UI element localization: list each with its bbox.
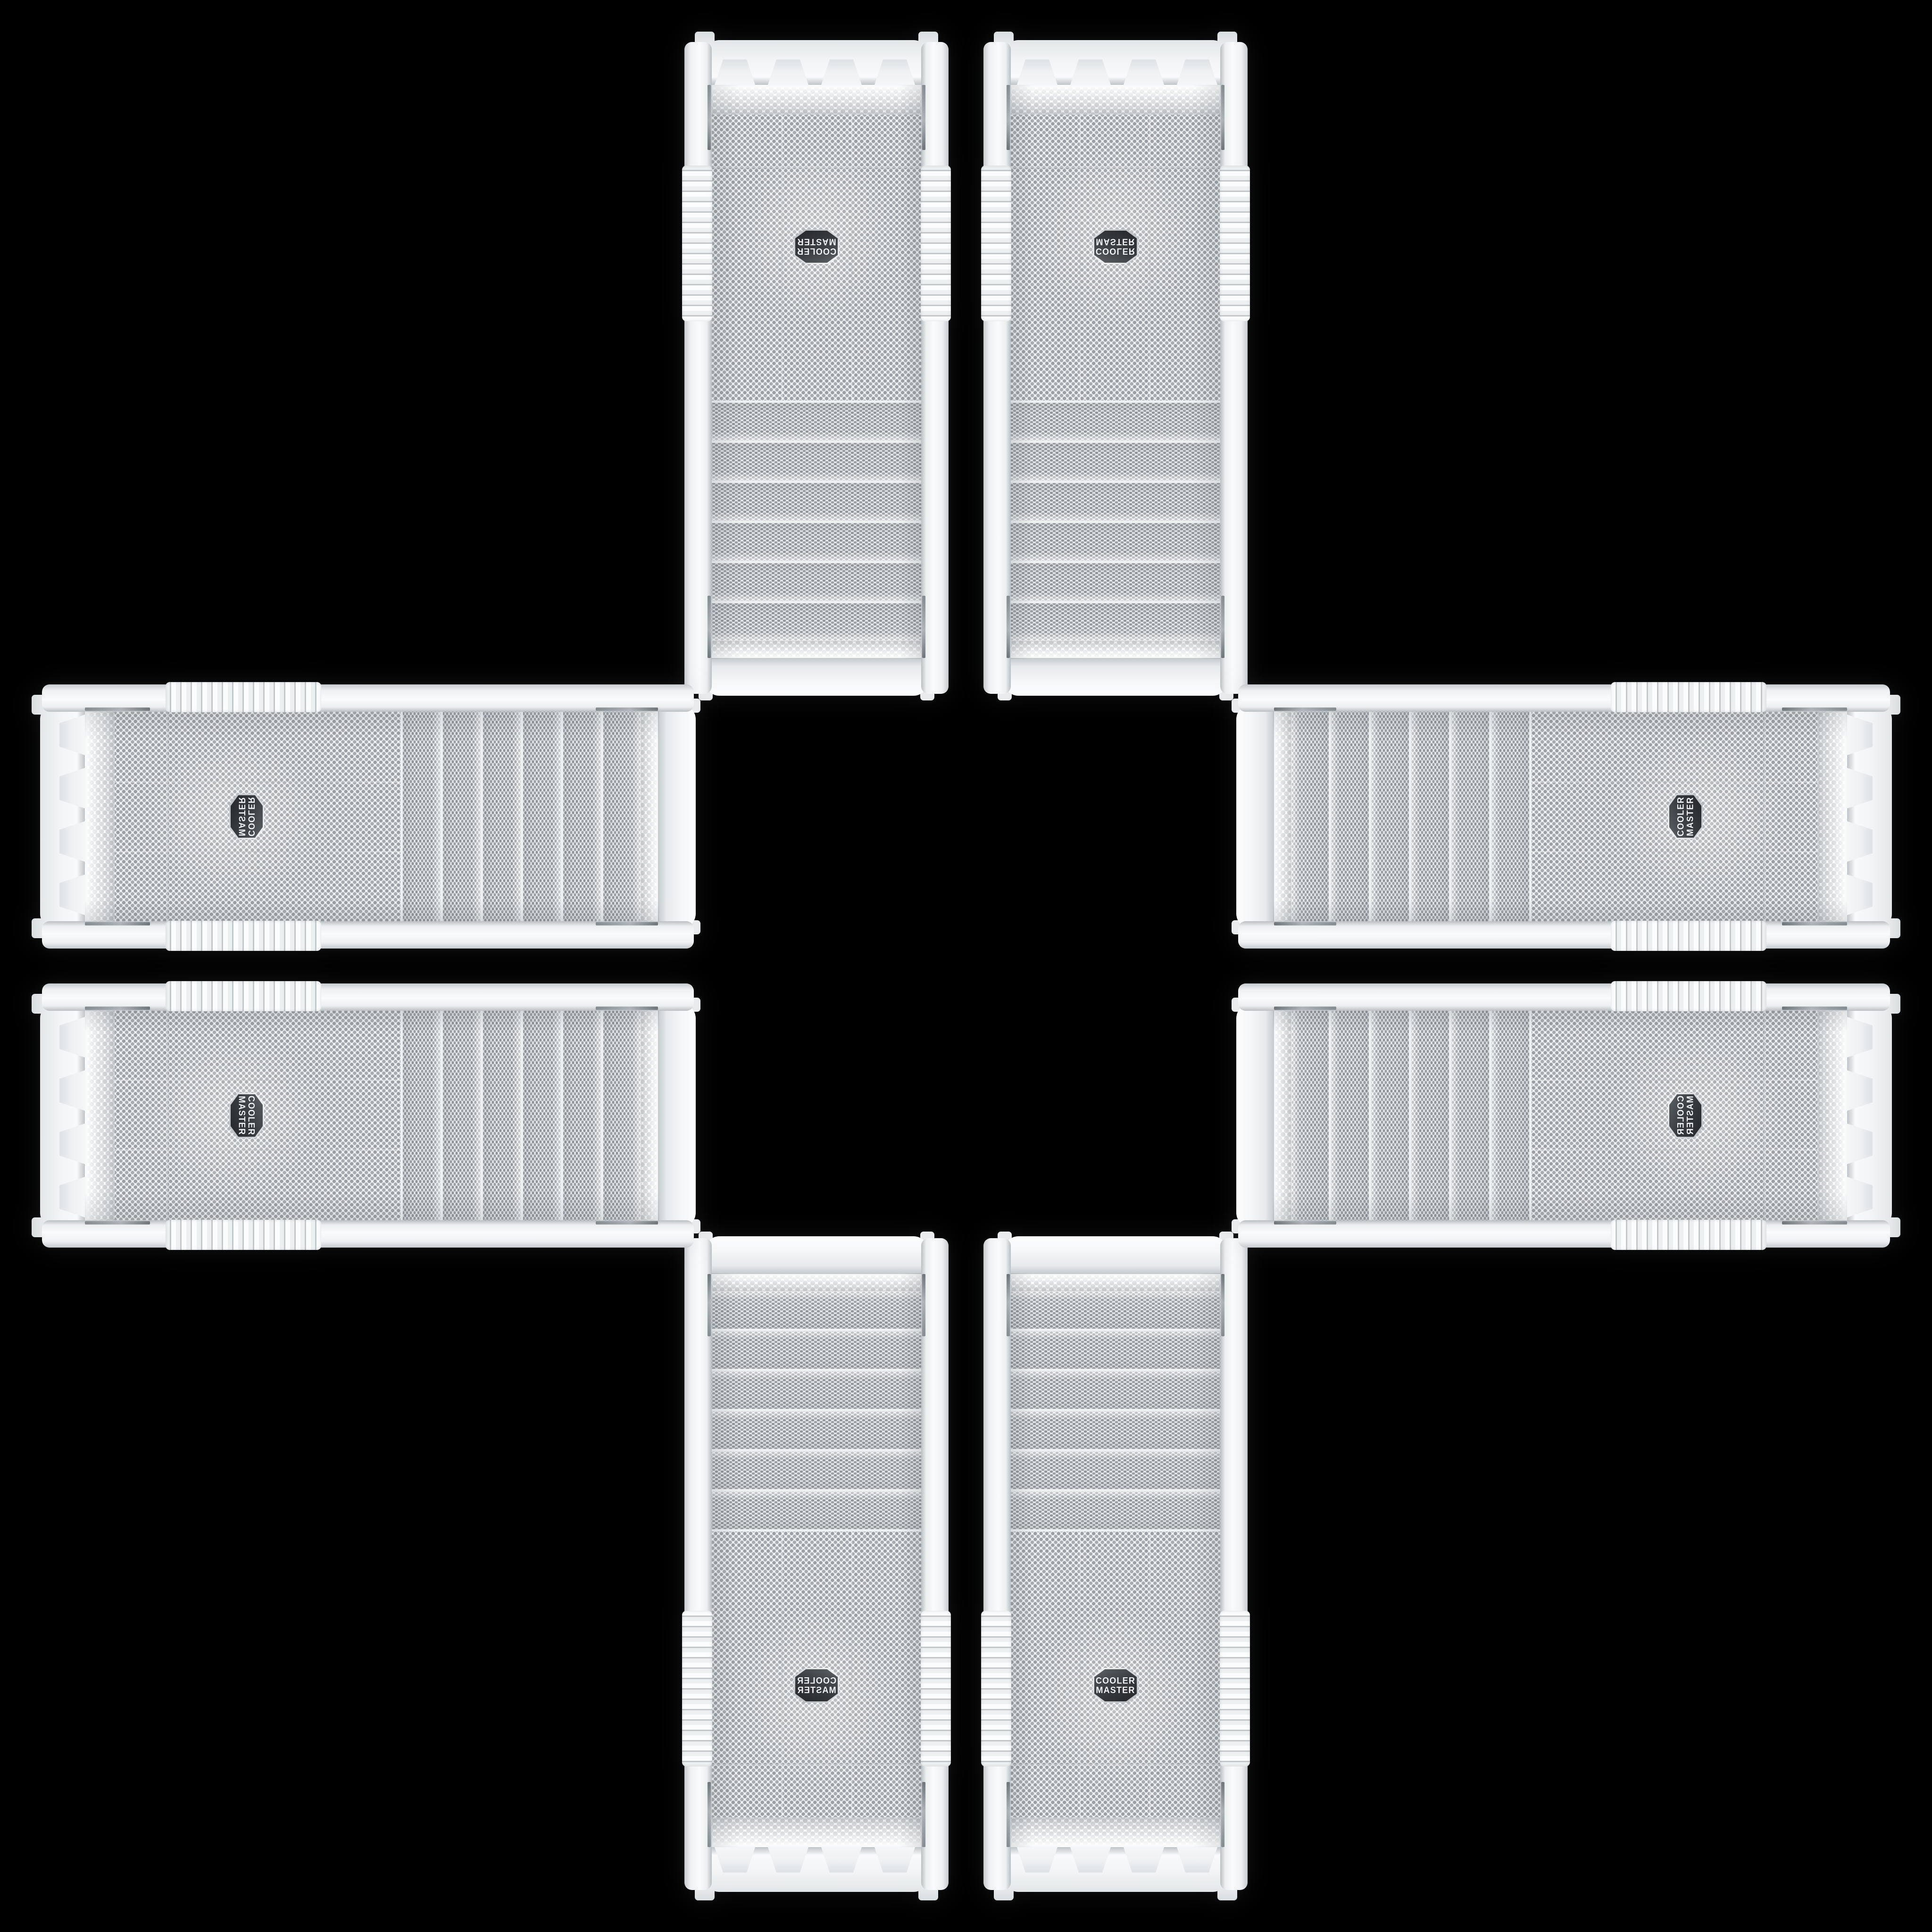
drive-bay-strips <box>711 1291 922 1532</box>
foot-bump <box>1846 817 1873 866</box>
foot-bump <box>59 764 86 813</box>
cooler-master-badge: COOLER MASTER <box>1668 794 1703 839</box>
chrome-trim <box>1007 85 1010 150</box>
chrome-trim <box>1221 596 1224 658</box>
top-curved-mesh-band <box>1273 711 1291 922</box>
badge-text-line2: MASTER <box>1685 797 1695 836</box>
rail-grip-ribs <box>1611 921 1766 951</box>
rail-grip-ribs <box>1611 1220 1766 1250</box>
chrome-trim <box>708 596 711 658</box>
top-curved-mesh-band <box>1273 1010 1291 1221</box>
foot-bump <box>59 870 86 919</box>
chrome-trim <box>1221 85 1224 150</box>
drive-bay-cover <box>1010 403 1221 441</box>
foot-bump <box>817 1846 866 1873</box>
foot-bump <box>1846 764 1873 813</box>
drive-bay-cover <box>1451 1010 1489 1221</box>
cooler-master-badge: COOLER MASTER <box>229 1093 264 1138</box>
mesh-seam <box>115 1149 400 1150</box>
top-curved-mesh-band <box>711 641 922 659</box>
foot-bump <box>1119 1846 1168 1873</box>
chrome-trim <box>708 1274 711 1336</box>
drive-bay-cover <box>1010 483 1221 521</box>
cooler-master-badge: COOLER MASTER <box>229 794 264 839</box>
top-cap <box>658 705 696 928</box>
drive-bay-cover <box>1371 711 1409 922</box>
drive-bay-strips <box>1010 1291 1221 1532</box>
chrome-trim <box>1007 1274 1010 1336</box>
chrome-trim <box>922 85 925 150</box>
badge-text-line1: COOLER <box>246 797 257 836</box>
tower-bottom-left: COOLER MASTER <box>684 1236 949 1892</box>
rail-grip-ribs <box>981 1611 1011 1766</box>
mesh-seam <box>167 711 168 922</box>
drive-bay-cover <box>1010 1331 1221 1369</box>
chrome-trim <box>1274 708 1336 711</box>
drive-bay-cover <box>483 711 521 922</box>
drive-bay-cover <box>1411 711 1449 922</box>
badge-text-line1: COOLER <box>797 1675 836 1686</box>
mesh-seam <box>1532 1149 1817 1150</box>
drive-bay-cover <box>1411 1010 1449 1221</box>
badge-face: COOLER MASTER <box>795 231 838 263</box>
front-mesh-bezel <box>1009 1273 1222 1847</box>
cooler-master-badge: COOLER MASTER <box>794 1668 839 1703</box>
drive-bay-cover <box>1010 563 1221 601</box>
chrome-trim <box>1274 922 1336 925</box>
rail-grip-ribs <box>921 1611 951 1766</box>
top-cap <box>705 658 928 696</box>
foot-bump <box>1119 59 1168 86</box>
chrome-trim <box>85 1221 150 1224</box>
chrome-trim <box>1274 1007 1336 1010</box>
foot-bump <box>1846 870 1873 919</box>
cooler-master-badge: COOLER MASTER <box>1668 1093 1703 1138</box>
rail-grip-ribs <box>682 1611 712 1766</box>
top-curved-mesh-band <box>641 1010 659 1221</box>
drive-bay-cover <box>711 403 922 441</box>
mesh-seam <box>167 1010 168 1221</box>
drive-bay-cover <box>603 711 641 922</box>
badge-face: COOLER MASTER <box>795 1669 838 1701</box>
chrome-trim <box>1274 1221 1336 1224</box>
front-mesh-bezel <box>1273 710 1847 923</box>
rail-grip-ribs <box>166 682 321 712</box>
foot-bump <box>870 1846 919 1873</box>
foot-bump <box>764 59 813 86</box>
drive-bay-cover <box>1371 1010 1409 1221</box>
drive-bay-cover <box>443 1010 481 1221</box>
foot-bump <box>1066 59 1115 86</box>
chrome-trim <box>922 596 925 658</box>
chrome-trim <box>708 1782 711 1847</box>
bottom-curved-mesh-band <box>1817 711 1847 922</box>
foot-bump <box>710 1846 759 1873</box>
badge-face: COOLER MASTER <box>1094 1669 1137 1701</box>
foot-bump <box>1846 1119 1873 1168</box>
rail-grip-ribs <box>1611 981 1766 1011</box>
rail-grip-ribs <box>166 1220 321 1250</box>
bottom-curved-mesh-band <box>1010 1817 1221 1847</box>
drive-bay-cover <box>711 1411 922 1449</box>
bottom-cap <box>1004 40 1227 85</box>
drive-bay-cover <box>523 1010 561 1221</box>
drive-bay-cover <box>523 711 561 922</box>
chrome-trim <box>85 1007 150 1010</box>
bottom-curved-mesh-band <box>1817 1010 1847 1221</box>
badge-face: COOLER MASTER <box>1669 1094 1701 1137</box>
horizontal-left-top: COOLER MASTER <box>40 684 696 949</box>
drive-bay-strips <box>400 711 641 922</box>
mesh-seam <box>1010 1764 1221 1765</box>
badge-text-line1: COOLER <box>797 246 836 257</box>
drive-bay-cover <box>563 711 601 922</box>
foot-bump <box>59 1173 86 1222</box>
foot-bump <box>1846 1066 1873 1115</box>
tower-top-left: COOLER MASTER <box>684 40 949 696</box>
drive-bay-cover <box>603 1010 641 1221</box>
drive-bay-cover <box>1451 711 1489 922</box>
drive-bay-cover <box>443 711 481 922</box>
foot-bump <box>59 1119 86 1168</box>
foot-bump <box>1013 59 1062 86</box>
chrome-trim <box>85 708 150 711</box>
horizontal-right-top: COOLER MASTER <box>1236 684 1892 949</box>
badge-face: COOLER MASTER <box>231 1094 263 1137</box>
tower-top-right: COOLER MASTER <box>983 40 1248 696</box>
foot-bump <box>1013 1846 1062 1873</box>
foot-bump <box>59 710 86 759</box>
cooler-master-badge: COOLER MASTER <box>1093 229 1138 264</box>
bottom-curved-mesh-band <box>711 85 922 115</box>
rail-grip-ribs <box>166 921 321 951</box>
drive-bay-cover <box>711 523 922 561</box>
chrome-trim <box>708 85 711 150</box>
foot-bump <box>1173 1846 1222 1873</box>
bottom-cap <box>40 1004 85 1227</box>
mesh-seam <box>115 1080 400 1081</box>
cooler-master-badge: COOLER MASTER <box>794 229 839 264</box>
badge-text-line1: COOLER <box>246 1096 257 1135</box>
chrome-trim <box>596 708 658 711</box>
badge-text-line2: MASTER <box>237 1096 247 1135</box>
rail-grip-ribs <box>921 166 951 321</box>
mesh-seam <box>1149 115 1150 400</box>
horizontal-right-bottom: COOLER MASTER <box>1236 983 1892 1248</box>
top-cap <box>1004 1236 1227 1274</box>
mesh-seam <box>115 851 400 852</box>
bottom-cap <box>1847 1004 1892 1227</box>
drive-bay-cover <box>1010 1491 1221 1529</box>
mesh-seam <box>851 115 852 400</box>
badge-face: COOLER MASTER <box>231 795 263 838</box>
drive-bay-cover <box>1291 1010 1329 1221</box>
mesh-seam <box>1080 115 1081 400</box>
rail-grip-ribs <box>1611 682 1766 712</box>
front-mesh-bezel <box>710 85 923 659</box>
rail-grip-ribs <box>682 166 712 321</box>
mesh-seam <box>1532 851 1817 852</box>
foot-bump <box>764 1846 813 1873</box>
top-cap <box>658 1004 696 1227</box>
mesh-seam <box>782 115 783 400</box>
mesh-seam <box>851 1532 852 1817</box>
rail-grip-ribs <box>1220 1611 1250 1766</box>
foot-bump <box>59 817 86 866</box>
badge-text-line2: MASTER <box>797 237 836 247</box>
drive-bay-cover <box>711 1451 922 1489</box>
drive-bay-cover <box>1331 711 1369 922</box>
top-cap <box>1004 658 1227 696</box>
badge-text-line2: MASTER <box>797 1685 836 1695</box>
horizontal-left-bottom: COOLER MASTER <box>40 983 696 1248</box>
foot-bump <box>817 59 866 86</box>
drive-bay-cover <box>711 1291 922 1329</box>
mesh-seam <box>711 167 922 168</box>
drive-bay-cover <box>711 603 922 641</box>
drive-bay-cover <box>483 1010 521 1221</box>
bottom-cap <box>705 40 928 85</box>
cooler-master-badge: COOLER MASTER <box>1093 1668 1138 1703</box>
badge-text-line1: COOLER <box>1096 246 1135 257</box>
drive-bay-cover <box>1491 711 1529 922</box>
drive-bay-strips <box>400 1010 641 1221</box>
top-curved-mesh-band <box>711 1273 922 1291</box>
top-curved-mesh-band <box>1010 641 1221 659</box>
badge-text-line2: MASTER <box>1685 1096 1695 1135</box>
mesh-seam <box>1010 167 1221 168</box>
chrome-trim <box>1782 1221 1847 1224</box>
chrome-trim <box>1782 1007 1847 1010</box>
bottom-curved-mesh-band <box>711 1817 922 1847</box>
drive-bay-cover <box>711 1491 922 1529</box>
bottom-curved-mesh-band <box>85 711 115 922</box>
foot-bump <box>59 1013 86 1062</box>
top-curved-mesh-band <box>641 711 659 922</box>
chrome-trim <box>1782 708 1847 711</box>
mesh-seam <box>1149 1532 1150 1817</box>
foot-bump <box>59 1066 86 1115</box>
chrome-trim <box>1007 596 1010 658</box>
drive-bay-cover <box>403 711 441 922</box>
rail-grip-ribs <box>1220 166 1250 321</box>
bottom-cap <box>1004 1847 1227 1892</box>
drive-bay-strips <box>1291 711 1532 922</box>
chrome-trim <box>1221 1782 1224 1847</box>
drive-bay-cover <box>711 563 922 601</box>
drive-bay-strips <box>1010 400 1221 641</box>
top-cap <box>705 1236 928 1274</box>
stage: COOLER MASTER <box>0 0 1932 1932</box>
foot-bump <box>1846 710 1873 759</box>
drive-bay-cover <box>1010 1451 1221 1489</box>
foot-bump <box>1846 1013 1873 1062</box>
chrome-trim <box>1007 1782 1010 1847</box>
foot-bump <box>710 59 759 86</box>
drive-bay-strips <box>1291 1010 1532 1221</box>
foot-bump <box>870 59 919 86</box>
badge-text-line2: MASTER <box>237 797 247 836</box>
drive-bay-cover <box>1010 523 1221 561</box>
drive-bay-cover <box>1010 1291 1221 1329</box>
chrome-trim <box>596 922 658 925</box>
drive-bay-cover <box>1010 443 1221 481</box>
chrome-trim <box>922 1782 925 1847</box>
badge-text-line1: COOLER <box>1675 1096 1686 1135</box>
drive-bay-cover <box>711 1371 922 1409</box>
chrome-trim <box>1221 1274 1224 1336</box>
bottom-curved-mesh-band <box>1010 85 1221 115</box>
front-mesh-bezel <box>85 1009 659 1222</box>
chrome-trim <box>1782 922 1847 925</box>
mesh-seam <box>1532 1080 1817 1081</box>
rail-grip-ribs <box>166 981 321 1011</box>
drive-bay-cover <box>711 483 922 521</box>
mesh-seam <box>1080 1532 1081 1817</box>
bottom-cap <box>40 705 85 928</box>
drive-bay-cover <box>711 443 922 481</box>
badge-text-line2: MASTER <box>1096 237 1135 247</box>
front-mesh-bezel <box>1009 85 1222 659</box>
mesh-seam <box>115 782 400 783</box>
chrome-trim <box>596 1007 658 1010</box>
front-mesh-bezel <box>710 1273 923 1847</box>
foot-bump <box>1846 1173 1873 1222</box>
top-cap <box>1236 1004 1274 1227</box>
foot-bump <box>1173 59 1222 86</box>
drive-bay-cover <box>403 1010 441 1221</box>
badge-text-line1: COOLER <box>1675 797 1686 836</box>
mesh-seam <box>782 1532 783 1817</box>
top-curved-mesh-band <box>1010 1273 1221 1291</box>
chrome-trim <box>922 1274 925 1336</box>
rail-grip-ribs <box>981 166 1011 321</box>
drive-bay-strips <box>711 400 922 641</box>
drive-bay-cover <box>1010 1371 1221 1409</box>
bottom-cap <box>705 1847 928 1892</box>
mesh-seam <box>1764 711 1765 922</box>
badge-face: COOLER MASTER <box>1669 795 1701 838</box>
badge-text-line2: MASTER <box>1096 1685 1135 1695</box>
drive-bay-cover <box>563 1010 601 1221</box>
badge-face: COOLER MASTER <box>1094 231 1137 263</box>
mesh-seam <box>711 1764 922 1765</box>
drive-bay-cover <box>1010 603 1221 641</box>
tower-bottom-right: COOLER MASTER <box>983 1236 1248 1892</box>
top-cap <box>1236 705 1274 928</box>
mesh-seam <box>1764 1010 1765 1221</box>
mesh-seam <box>1532 782 1817 783</box>
drive-bay-cover <box>1331 1010 1369 1221</box>
drive-bay-cover <box>1491 1010 1529 1221</box>
drive-bay-cover <box>1291 711 1329 922</box>
badge-text-line1: COOLER <box>1096 1675 1135 1686</box>
drive-bay-cover <box>711 1331 922 1369</box>
foot-bump <box>1066 1846 1115 1873</box>
front-mesh-bezel <box>85 710 659 923</box>
chrome-trim <box>596 1221 658 1224</box>
chrome-trim <box>85 922 150 925</box>
drive-bay-cover <box>1010 1411 1221 1449</box>
bottom-cap <box>1847 705 1892 928</box>
front-mesh-bezel <box>1273 1009 1847 1222</box>
bottom-curved-mesh-band <box>85 1010 115 1221</box>
